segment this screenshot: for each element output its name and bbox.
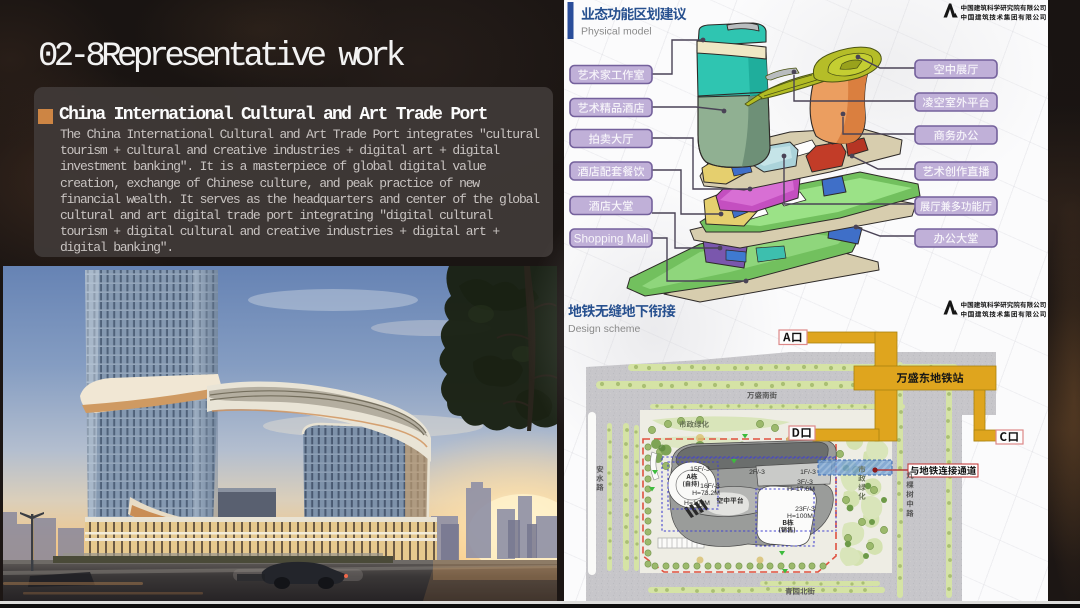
svg-text:H=100M: H=100M <box>787 513 813 520</box>
svg-text:H=100M: H=100M <box>684 500 710 507</box>
svg-text:23F/-3: 23F/-3 <box>795 506 815 513</box>
svg-text:H=17.6M: H=17.6M <box>787 486 815 493</box>
svg-text:Physical model: Physical model <box>581 26 652 38</box>
svg-text:2F/-3: 2F/-3 <box>749 469 765 476</box>
svg-text:15F/-3: 15F/-3 <box>690 466 710 473</box>
svg-text:H=73.2M: H=73.2M <box>692 490 720 497</box>
svg-text:Shopping Mall: Shopping Mall <box>574 232 649 246</box>
svg-text:16F/-3: 16F/-3 <box>700 483 720 490</box>
svg-text:1F/-3: 1F/-3 <box>800 469 816 476</box>
svg-text:Design scheme: Design scheme <box>568 323 641 335</box>
svg-text:3F/-3: 3F/-3 <box>797 479 813 486</box>
